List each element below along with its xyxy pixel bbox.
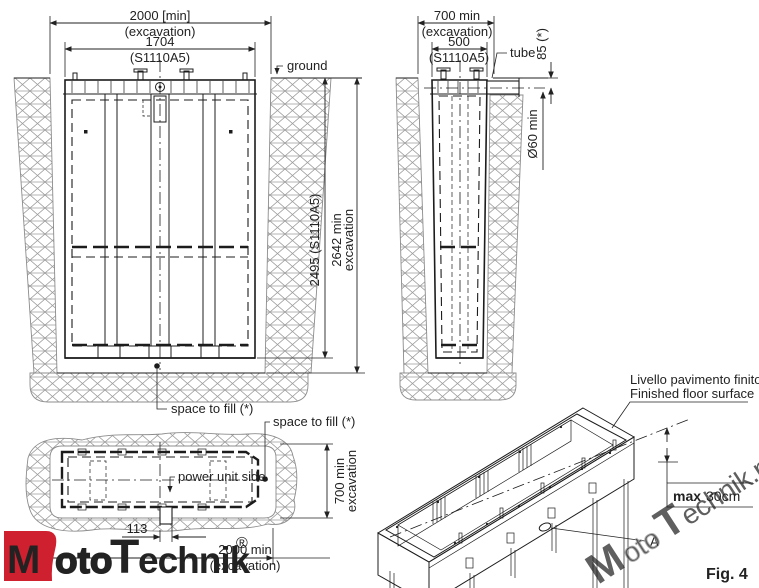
iso-view: Livello pavimento finito Finished floor … [378, 372, 759, 588]
side-view: 700 min (excavation) 500 (S1110A5) tube … [396, 8, 558, 400]
floor-level-label-it: Livello pavimento finito [630, 372, 759, 387]
front-view-earth [14, 78, 331, 402]
logo-echnik: echnik [138, 540, 251, 581]
dim-tube-diameter: Ø60 min [525, 109, 540, 158]
dim-tube-depth: 85 (*) [534, 28, 549, 60]
front-view: 2000 [min] (excavation) 1704 (S1110A5) g… [14, 8, 365, 416]
tube-label: tube [510, 45, 535, 60]
floor-level-label-en: Finished floor surface [630, 386, 754, 401]
dim-front-excavation-width: 2000 [min] [130, 8, 191, 23]
logo-registered-mark: ® [236, 535, 248, 552]
iso-guide-channels [433, 444, 531, 524]
front-view-dimensions: 2000 [min] (excavation) 1704 (S1110A5) g… [50, 8, 365, 416]
anchor-point [538, 521, 552, 532]
installation-drawing-fig4: 2000 [min] (excavation) 1704 (S1110A5) g… [0, 0, 759, 588]
power-unit-side-label: power unit side [178, 469, 265, 484]
logo-oto: oto [55, 540, 113, 581]
front-view-frame [63, 60, 257, 370]
logo-letter-t: T [110, 531, 139, 584]
drawing-canvas: 2000 [min] (excavation) 1704 (S1110A5) g… [0, 0, 759, 588]
dim-front-frame-width-note: (S1110A5) [130, 50, 190, 65]
dim-front-frame-width: 1704 [146, 34, 175, 49]
dim-excavation-depth-note: excavation [341, 209, 356, 271]
figure-label: Fig. 4 [706, 566, 748, 583]
dim-plan-excavation-width-note: excavation [344, 450, 359, 512]
dim-side-excavation-width: 700 min [434, 8, 480, 23]
logo-letter-m: M [7, 538, 40, 582]
dim-frame-depth: 2495 (S1110A5) [307, 194, 322, 287]
dim-side-frame-width: 500 [448, 34, 470, 49]
plan-tube-stub [160, 507, 172, 524]
dim-side-frame-width-note: (S1110A5) [429, 50, 489, 65]
side-view-frame [424, 60, 545, 368]
iso-rim-bolt-holes [396, 426, 611, 544]
plan-space-to-fill-label: space to fill (*) [273, 414, 355, 429]
brand-logo: M oto T echnik ® [4, 531, 251, 584]
front-space-to-fill-label: space to fill (*) [171, 401, 253, 416]
ground-label: ground [287, 58, 327, 73]
